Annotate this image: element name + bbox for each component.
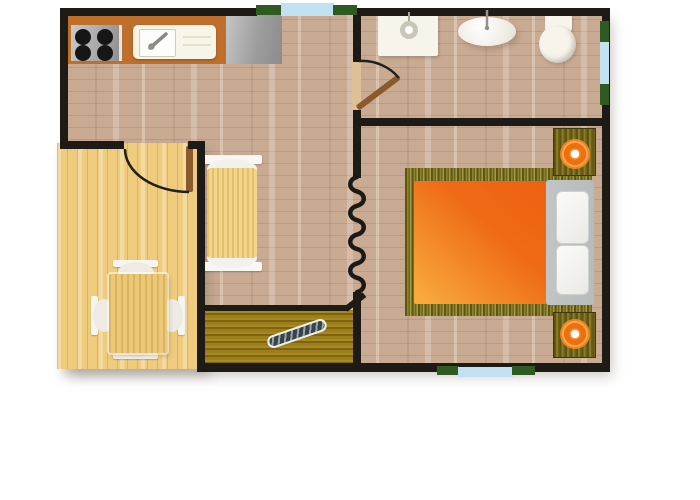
right-window-glass [600, 42, 609, 85]
terrace-door-leaf [186, 146, 193, 192]
wall [60, 141, 124, 149]
wall [60, 8, 68, 149]
window-shutter [600, 84, 609, 105]
sofa [207, 168, 257, 258]
steel-countertop [226, 12, 282, 64]
toilet-bowl [539, 25, 576, 63]
stove-burner-icon [75, 29, 91, 45]
drainboard-line [183, 36, 211, 38]
wall [353, 8, 361, 62]
window-shutter [256, 5, 282, 15]
pillow [556, 245, 589, 295]
window-shutter [333, 5, 357, 15]
stove-burner-icon [97, 29, 113, 45]
floor-plan [0, 0, 700, 500]
window-shutter [437, 366, 459, 375]
wall [353, 118, 610, 126]
bed-mattress [414, 181, 548, 304]
lamp-icon [560, 139, 590, 169]
wall [197, 305, 348, 311]
lamp-icon [560, 319, 590, 349]
window-shutter [600, 21, 609, 43]
kitchen-sink-basin [139, 29, 176, 57]
wall [356, 8, 610, 16]
stove-burner-icon [75, 45, 91, 61]
stove-burner-icon [97, 45, 113, 61]
washbasin [458, 17, 516, 46]
drainboard-line [183, 44, 211, 46]
shower-drain-icon [400, 21, 418, 39]
wall [60, 8, 257, 16]
bottom-window-glass [458, 367, 513, 377]
wall [197, 363, 610, 372]
top-window-glass [281, 3, 334, 16]
window-shutter [512, 366, 535, 375]
pillow [556, 191, 589, 244]
wall [197, 141, 205, 372]
dining-table [109, 274, 167, 353]
